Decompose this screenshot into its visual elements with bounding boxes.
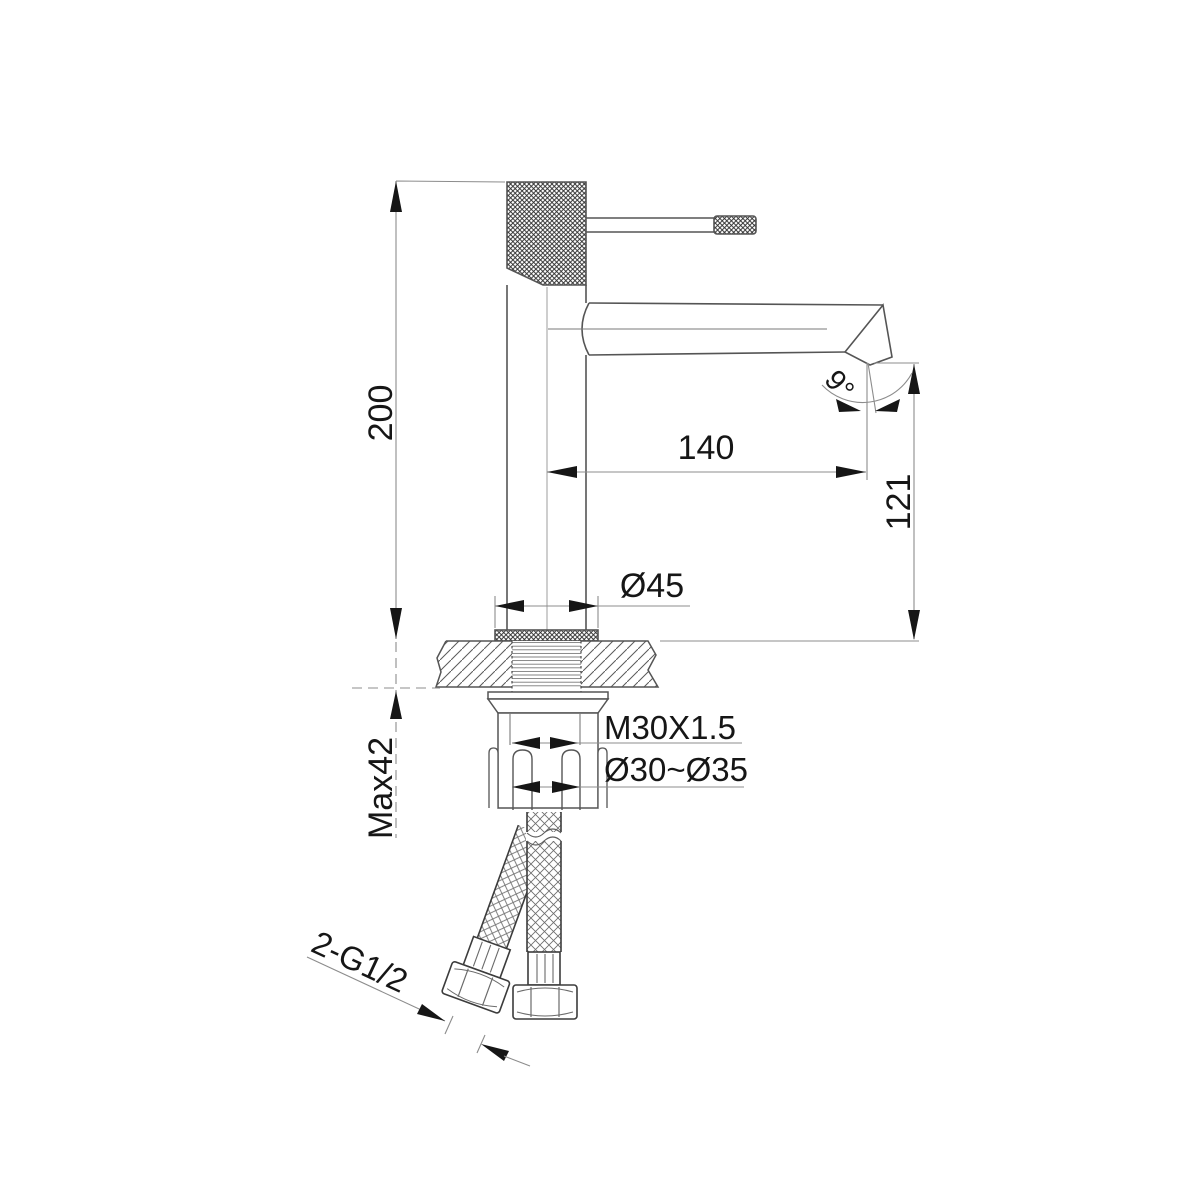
nut-tab-left: [489, 748, 498, 808]
base-ring: [495, 630, 598, 641]
counter-slab-left: [436, 641, 512, 687]
dim-mounting-hole-range-label: Ø30~Ø35: [604, 751, 748, 788]
mounting-washer: [488, 692, 608, 699]
thread-shank: [512, 641, 581, 687]
dim-overall-height-label: 200: [362, 385, 400, 442]
dim-outlet-height-label: 121: [880, 474, 918, 531]
dim-mounting-thread-label: M30X1.5: [604, 709, 736, 746]
drawing-page: 200 Max42 140 121 9° Ø45: [0, 0, 1200, 1200]
dim-base-diameter-label: Ø45: [620, 567, 684, 605]
hose-ferrule-right: [528, 952, 560, 985]
dim-spout-reach-label: 140: [678, 429, 735, 467]
mounting-collar: [488, 699, 608, 713]
countertop: [436, 641, 658, 692]
dim-max-deck-thickness-label: Max42: [362, 737, 400, 839]
counter-slab-right: [581, 641, 658, 687]
mounting-assembly: [488, 692, 608, 810]
faucet-technical-drawing: 200 Max42 140 121 9° Ø45: [0, 0, 1200, 1200]
lever-grip: [714, 216, 756, 234]
canvas-background: [0, 0, 1200, 1200]
handle-cap: [507, 182, 586, 285]
